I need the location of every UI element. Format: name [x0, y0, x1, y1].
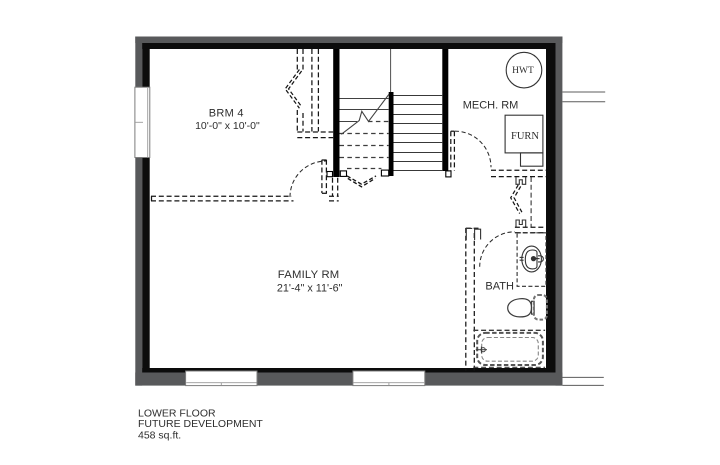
- svg-text:MECH. RM: MECH. RM: [463, 100, 519, 112]
- svg-text:FURN: FURN: [511, 131, 539, 142]
- svg-text:458 sq.ft.: 458 sq.ft.: [138, 430, 181, 442]
- svg-text:BATH: BATH: [485, 280, 514, 292]
- svg-text:BRM 4: BRM 4: [209, 108, 244, 120]
- svg-text:21'-4" x 11'-6": 21'-4" x 11'-6": [277, 282, 343, 294]
- svg-text:FAMILY RM: FAMILY RM: [278, 269, 340, 281]
- svg-text:FUTURE DEVELOPMENT: FUTURE DEVELOPMENT: [138, 418, 263, 430]
- svg-text:10'-0" x 10'-0": 10'-0" x 10'-0": [195, 120, 260, 132]
- svg-text:HWT: HWT: [512, 66, 534, 76]
